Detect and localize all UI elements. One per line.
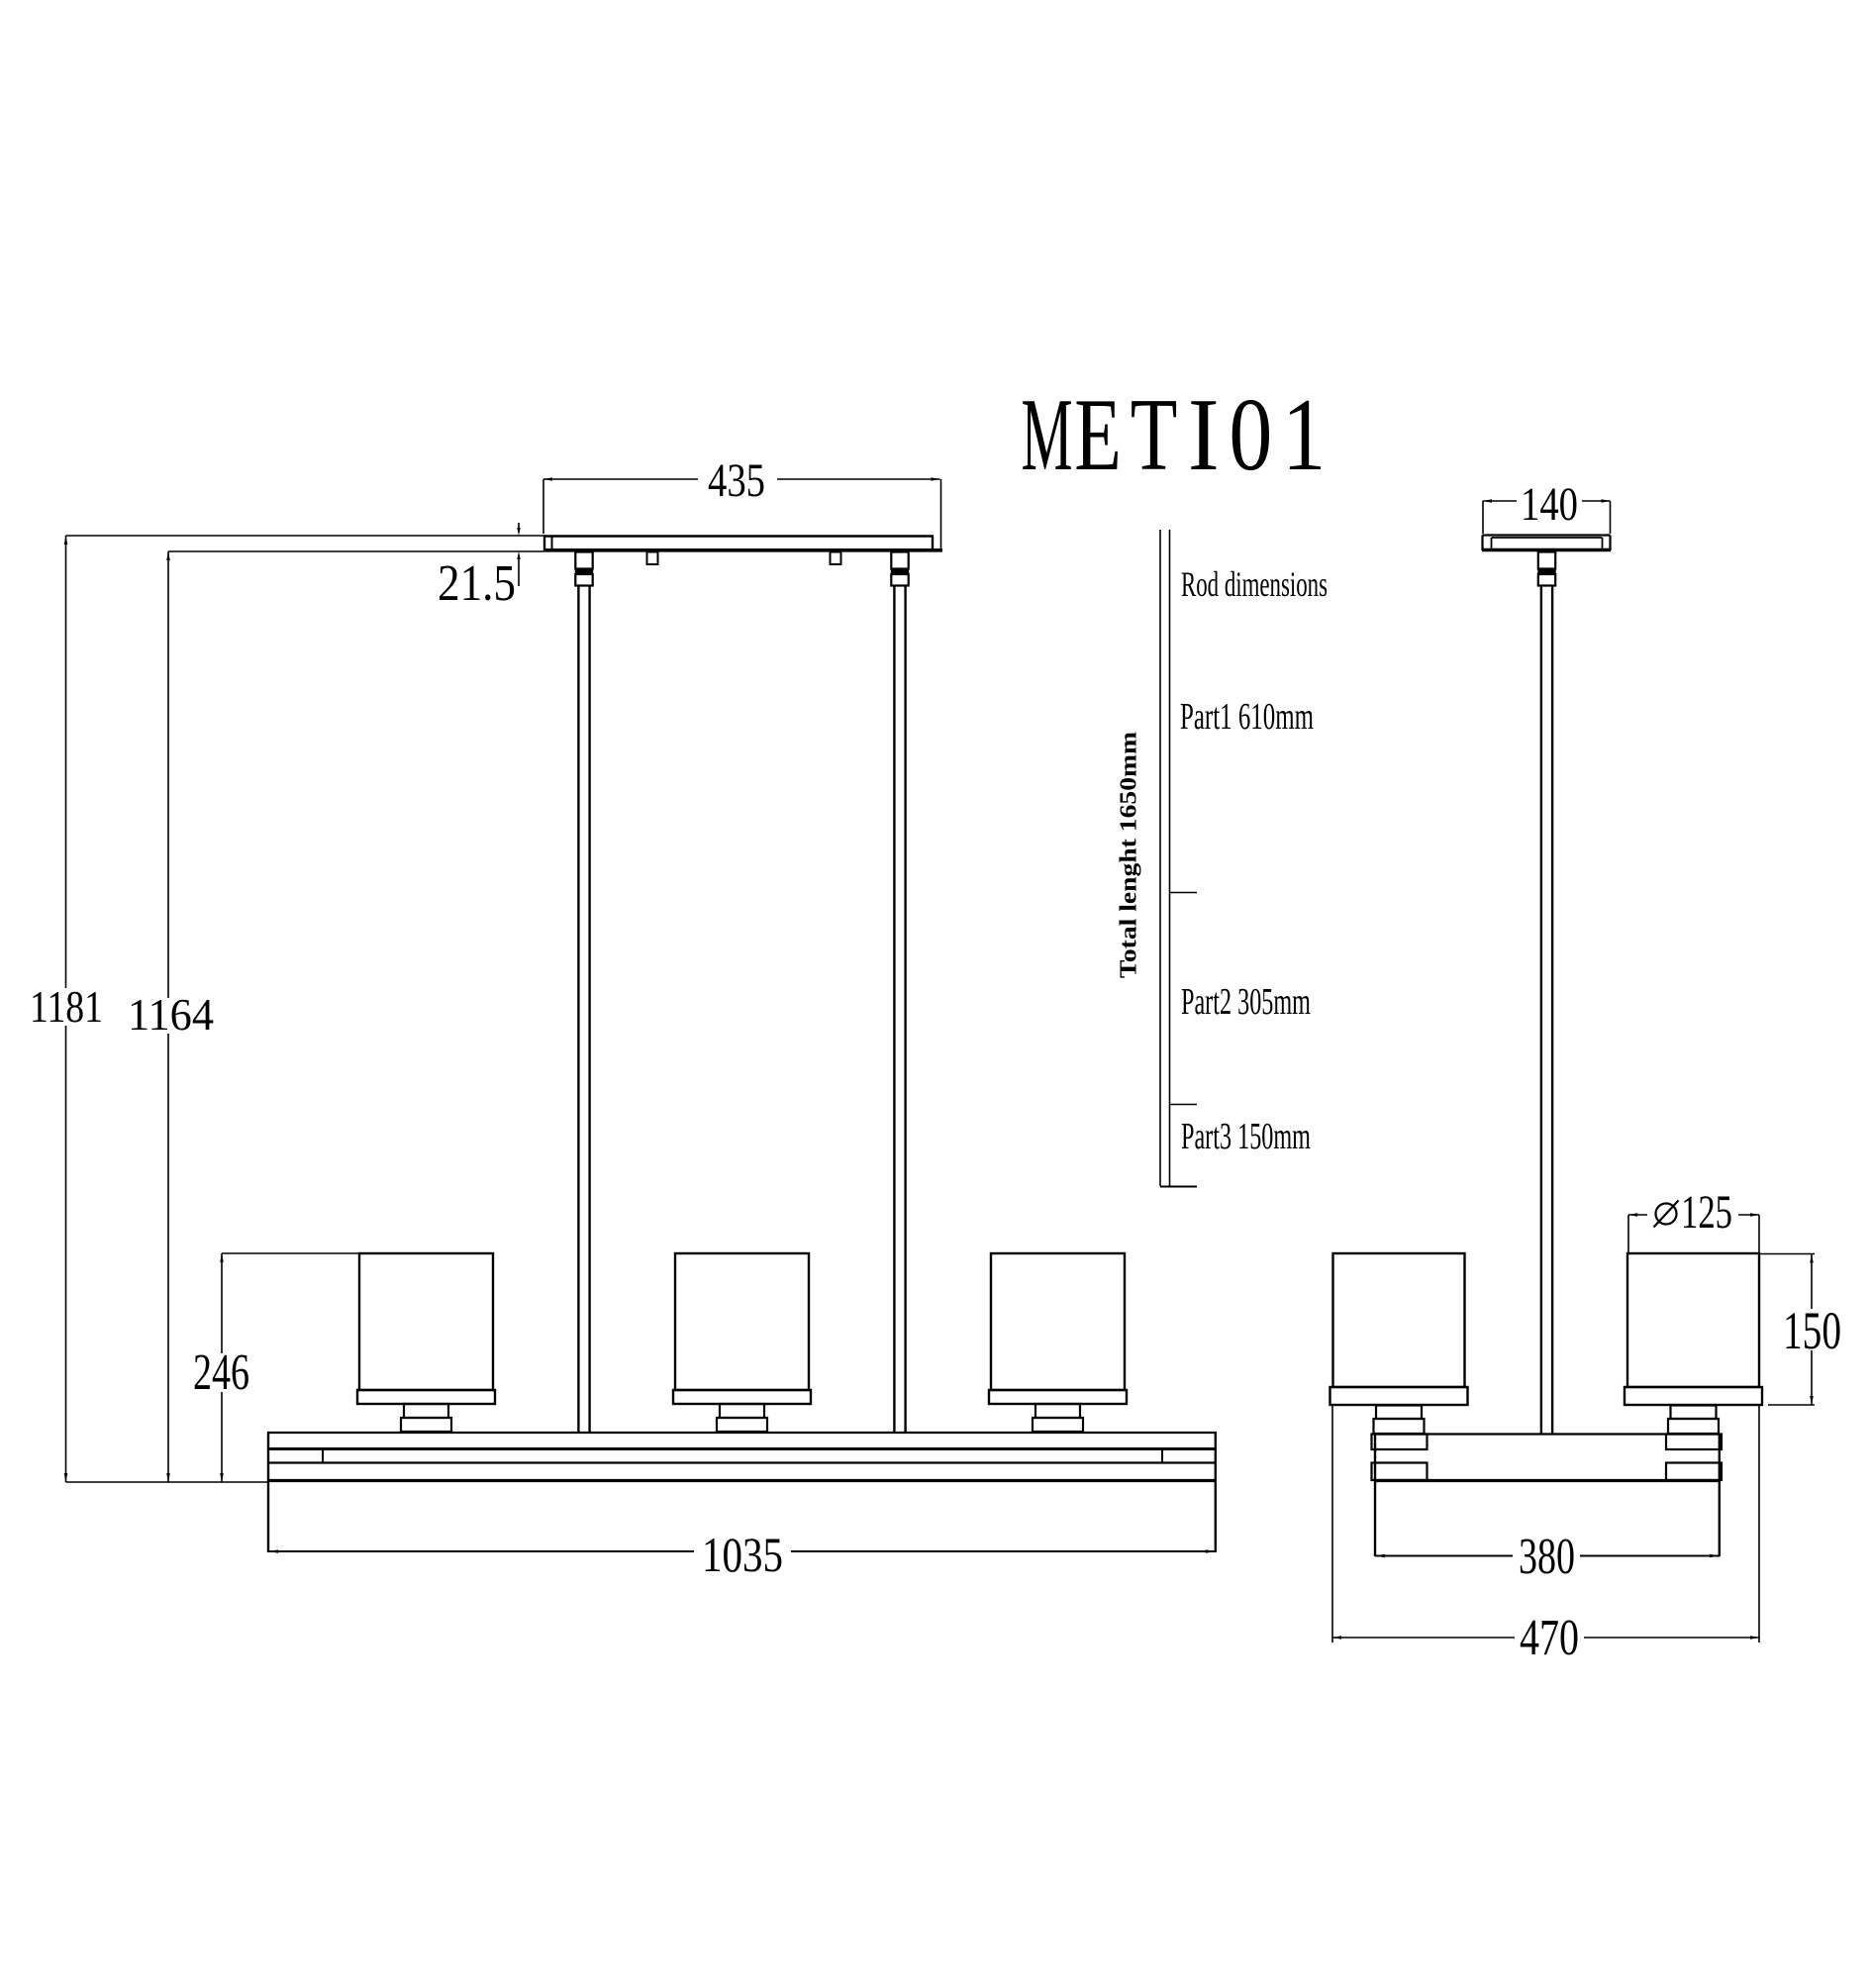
svg-text:125: 125 — [1681, 1186, 1732, 1239]
svg-text:Rod dimensions: Rod dimensions — [1181, 564, 1328, 604]
svg-text:Part3 150mm: Part3 150mm — [1181, 1116, 1311, 1157]
svg-text:246: 246 — [193, 1344, 249, 1401]
svg-text:1: 1 — [1282, 376, 1326, 492]
svg-text:470: 470 — [1520, 1610, 1579, 1666]
svg-text:150: 150 — [1783, 1301, 1841, 1360]
svg-text:Part2 305mm: Part2 305mm — [1181, 981, 1311, 1023]
svg-text:1164: 1164 — [128, 989, 214, 1040]
svg-text:380: 380 — [1519, 1529, 1575, 1585]
svg-text:M: M — [1022, 376, 1073, 492]
svg-text:1035: 1035 — [702, 1527, 783, 1582]
svg-text:I: I — [1188, 376, 1220, 492]
svg-text:0: 0 — [1229, 376, 1272, 492]
svg-text:Part1 610mm: Part1 610mm — [1180, 696, 1314, 738]
svg-text:140: 140 — [1521, 478, 1578, 531]
svg-text:1181: 1181 — [30, 981, 103, 1032]
svg-text:21.5: 21.5 — [438, 555, 516, 612]
svg-text:E: E — [1074, 376, 1122, 492]
svg-text:T: T — [1131, 376, 1178, 492]
svg-text:Total lenght 1650mm: Total lenght 1650mm — [1117, 732, 1142, 978]
svg-text:435: 435 — [708, 454, 765, 507]
